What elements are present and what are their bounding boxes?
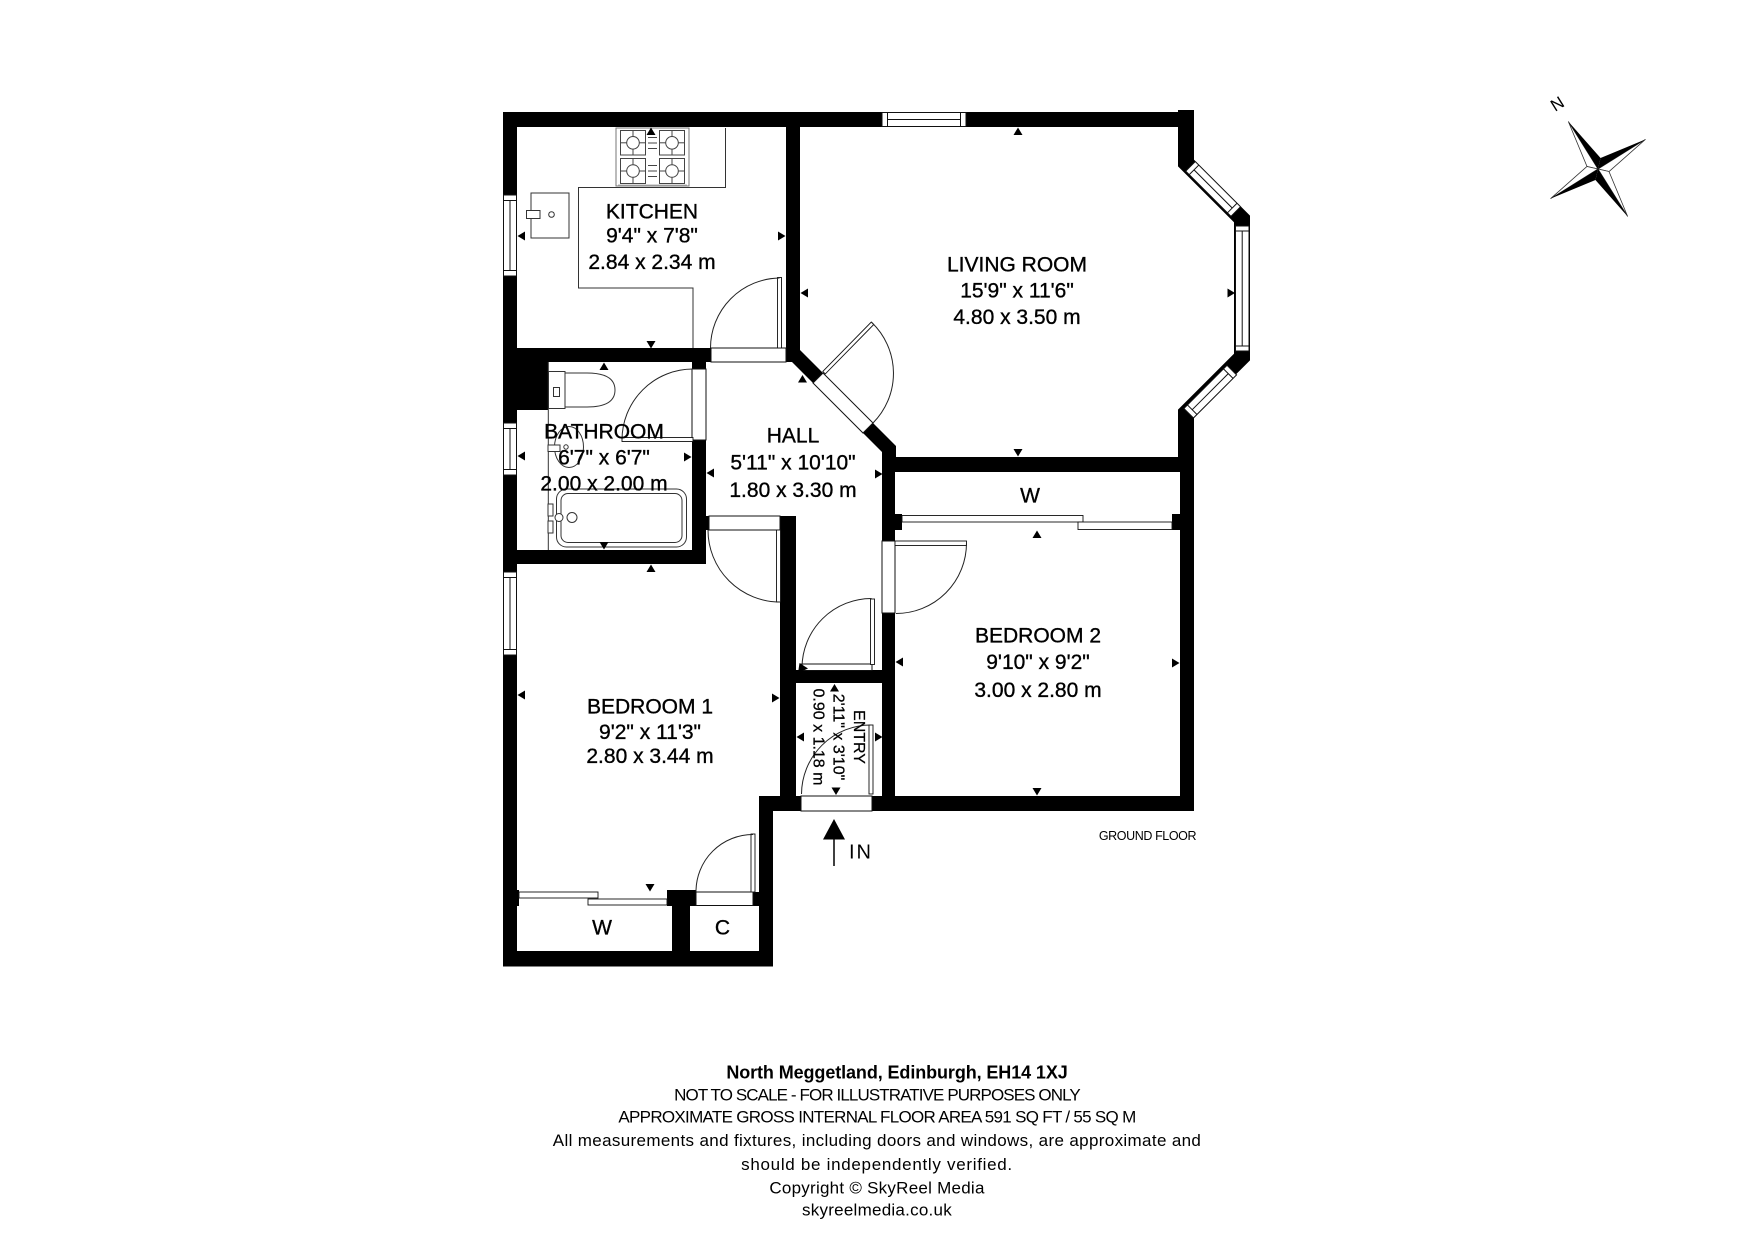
- svg-text:W: W: [592, 917, 612, 940]
- svg-text:GROUND FLOOR: GROUND FLOOR: [1099, 829, 1197, 843]
- svg-text:IN: IN: [849, 842, 873, 864]
- svg-text:APPROXIMATE GROSS INTERNAL FLO: APPROXIMATE GROSS INTERNAL FLOOR AREA 59…: [618, 1108, 1135, 1127]
- svg-text:1.80 x 3.30 m: 1.80 x 3.30 m: [729, 479, 856, 502]
- svg-text:BEDROOM 1: BEDROOM 1: [587, 696, 713, 719]
- svg-text:NOT TO SCALE - FOR ILLUSTRATIV: NOT TO SCALE - FOR ILLUSTRATIVE PURPOSES…: [674, 1085, 1080, 1104]
- svg-text:6'7" x 6'7": 6'7" x 6'7": [558, 447, 650, 470]
- svg-text:2.84 x 2.34 m: 2.84 x 2.34 m: [588, 251, 715, 274]
- svg-text:9'10" x 9'2": 9'10" x 9'2": [986, 651, 1090, 674]
- svg-text:2.80 x 3.44 m: 2.80 x 3.44 m: [586, 745, 713, 768]
- svg-text:15'9" x 11'6": 15'9" x 11'6": [960, 280, 1074, 303]
- svg-text:2.00 x 2.00 m: 2.00 x 2.00 m: [540, 473, 667, 496]
- svg-text:C: C: [715, 917, 730, 940]
- svg-text:HALL: HALL: [767, 425, 820, 448]
- svg-text:skyreelmedia.co.uk: skyreelmedia.co.uk: [802, 1201, 952, 1220]
- svg-text:9'2" x 11'3": 9'2" x 11'3": [599, 721, 701, 744]
- svg-text:KITCHEN: KITCHEN: [606, 201, 698, 224]
- svg-text:5'11" x 10'10": 5'11" x 10'10": [730, 452, 855, 475]
- svg-text:Copyright © SkyReel Media: Copyright © SkyReel Media: [769, 1179, 985, 1198]
- svg-text:LIVING ROOM: LIVING ROOM: [947, 254, 1087, 277]
- svg-text:0.90 x 1.18 m: 0.90 x 1.18 m: [810, 689, 827, 786]
- svg-text:should be independently verifi: should be independently verified.: [741, 1155, 1013, 1174]
- svg-text:ENTRY: ENTRY: [850, 710, 867, 764]
- svg-text:BATHROOM: BATHROOM: [544, 421, 664, 444]
- svg-text:North Meggetland, Edinburgh, E: North Meggetland, Edinburgh, EH14 1XJ: [726, 1063, 1067, 1083]
- svg-text:BEDROOM 2: BEDROOM 2: [975, 625, 1101, 648]
- svg-text:9'4" x 7'8": 9'4" x 7'8": [606, 225, 698, 248]
- svg-text:3.00 x 2.80 m: 3.00 x 2.80 m: [974, 679, 1101, 702]
- svg-text:W: W: [1020, 485, 1040, 508]
- svg-text:4.80 x 3.50 m: 4.80 x 3.50 m: [953, 306, 1080, 329]
- svg-text:2'11" x 3'10": 2'11" x 3'10": [830, 694, 847, 781]
- svg-text:All measurements and fixtures,: All measurements and fixtures, including…: [553, 1131, 1201, 1150]
